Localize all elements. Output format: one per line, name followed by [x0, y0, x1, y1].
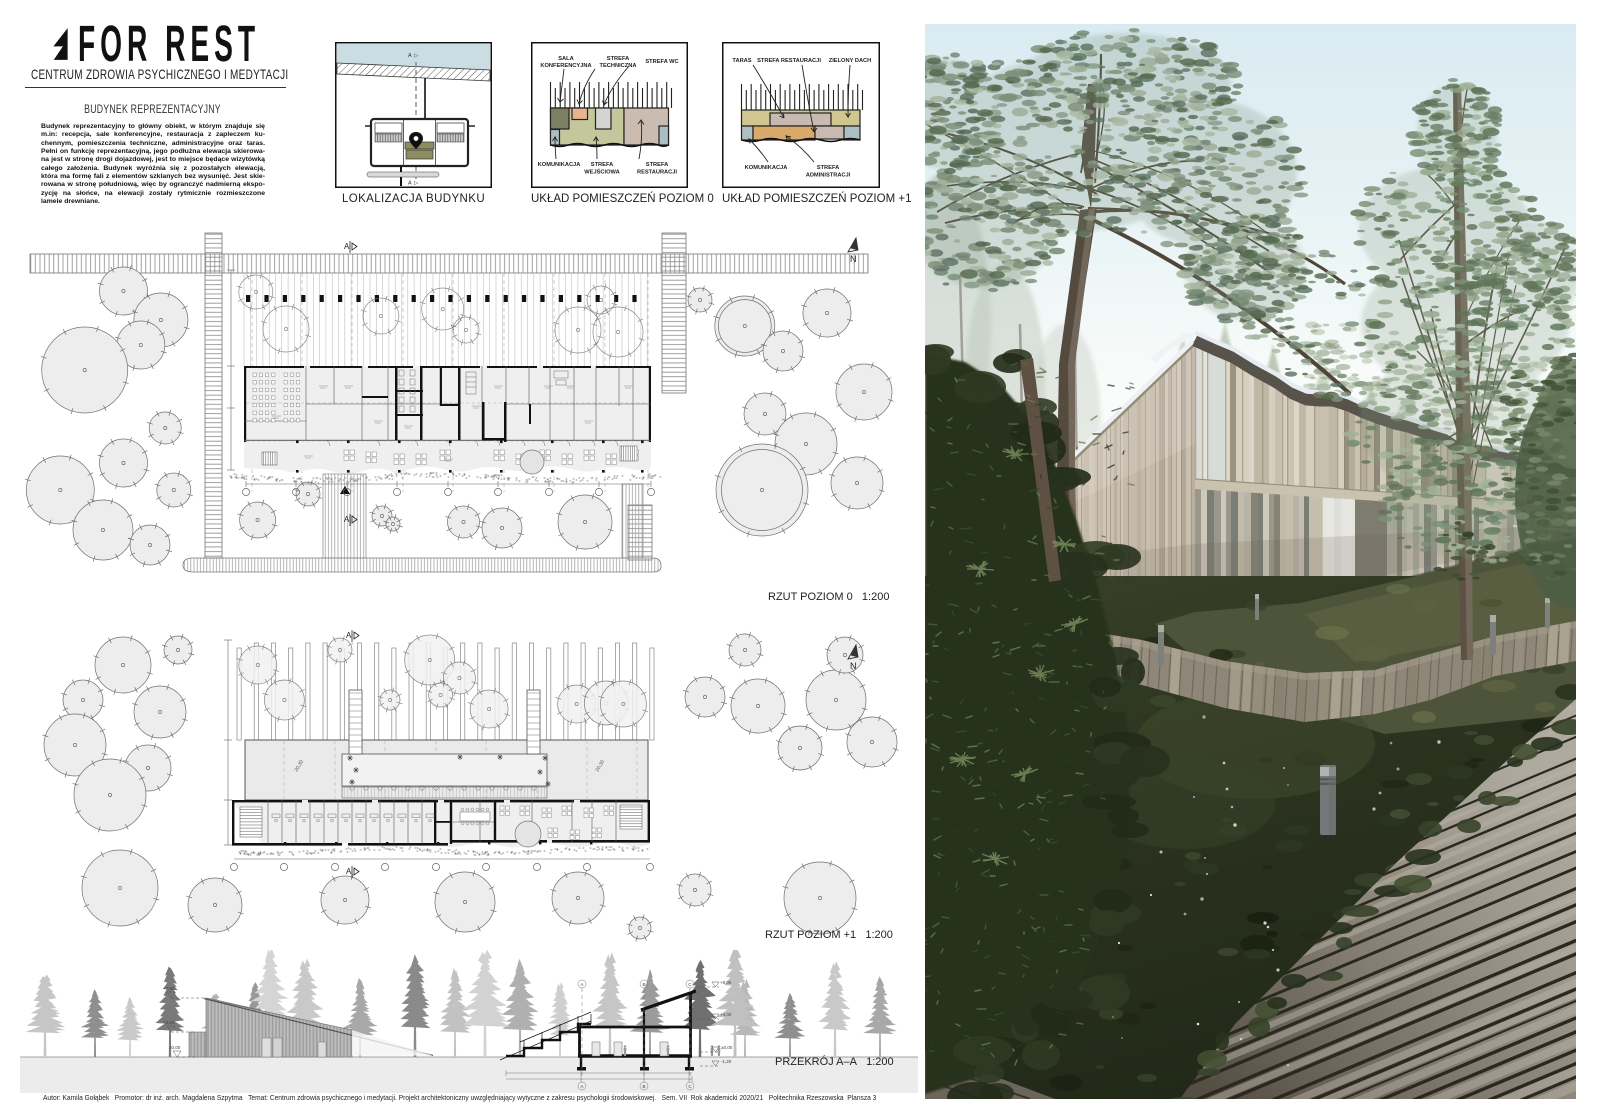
svg-text:SALA: SALA — [558, 56, 573, 62]
svg-text:STREFA: STREFA — [817, 165, 839, 171]
svg-text:STREFA: STREFA — [646, 162, 668, 168]
svg-text:WEJŚCIOWA: WEJŚCIOWA — [584, 169, 619, 176]
svg-text:TARAS: TARAS — [732, 58, 751, 64]
svg-text:A: A — [346, 867, 352, 876]
svg-text:KOMUNIKACJA: KOMUNIKACJA — [538, 162, 581, 168]
svg-text:A: A — [346, 631, 352, 640]
svg-text:STREFA RESTAURACJI: STREFA RESTAURACJI — [757, 58, 821, 64]
svg-text:STREFA WC: STREFA WC — [645, 59, 678, 65]
svg-text:STREFA: STREFA — [591, 162, 613, 168]
svg-text:+4,00: +4,00 — [720, 1012, 732, 1017]
svg-text:TECHNICZNA: TECHNICZNA — [600, 63, 637, 69]
svg-text:STREFA: STREFA — [607, 56, 629, 62]
svg-text:A: A — [408, 53, 412, 59]
svg-text:+7,50: +7,50 — [163, 986, 175, 991]
svg-text:A: A — [344, 242, 350, 251]
svg-text:KOMUNIKACJA: KOMUNIKACJA — [745, 165, 788, 171]
svg-text:N: N — [850, 661, 857, 671]
svg-text:A: A — [408, 181, 412, 187]
svg-text:±0,00: ±0,00 — [169, 1045, 181, 1050]
svg-text:A: A — [344, 515, 350, 524]
svg-text:RESTAURACJI: RESTAURACJI — [637, 170, 677, 176]
svg-text:N: N — [850, 254, 857, 264]
svg-text:ADMINISTRACJI: ADMINISTRACJI — [806, 173, 851, 179]
svg-text:+8,00: +8,00 — [720, 980, 732, 985]
svg-text:ZIELONY DACH: ZIELONY DACH — [829, 58, 872, 64]
svg-text:KONFERENCYJNA: KONFERENCYJNA — [540, 63, 591, 69]
svg-text:C: C — [688, 982, 692, 987]
svg-text:B: B — [642, 982, 645, 987]
svg-text:B: B — [642, 1084, 645, 1089]
svg-text:±0,00: ±0,00 — [721, 1045, 733, 1050]
svg-text:A: A — [580, 1084, 583, 1089]
svg-text:A: A — [580, 982, 583, 987]
svg-text:+3,50: +3,50 — [163, 1020, 175, 1025]
svg-text:-1,20: -1,20 — [721, 1059, 732, 1064]
